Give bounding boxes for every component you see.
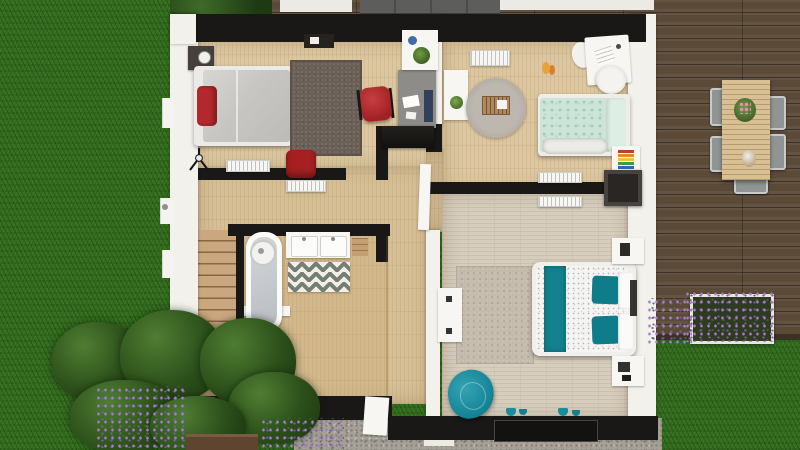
bedroom1-floor-lamp: [188, 146, 210, 172]
table-figurine: [742, 150, 756, 167]
bedroom1-radiator: [226, 160, 270, 172]
bedroom1-shelf-plant: [413, 47, 430, 64]
kids-desk-dot: [616, 44, 621, 49]
bedroom1-laptop: [424, 90, 433, 122]
faucet-left: [302, 237, 306, 241]
master-dresser-knob-1: [446, 296, 452, 302]
stacking-ring-blue: [618, 166, 634, 169]
top-shrubs: [170, 0, 272, 14]
deck-lavender-spill: [646, 298, 692, 344]
kids-radiator-bottom: [538, 172, 582, 183]
master-teal-pillow-1: [592, 276, 621, 305]
curb-top-right: [500, 0, 654, 10]
master-door-panel: [418, 164, 431, 230]
kids-side-table-plant: [450, 96, 463, 109]
bedroom1-shelf-cup: [408, 36, 417, 45]
northwest-corner: [170, 14, 196, 44]
bedroom1-lamp: [198, 51, 211, 64]
bedroom1-red-pillow: [197, 86, 217, 126]
stacking-ring-orange: [618, 154, 634, 157]
west-window-sill-2: [160, 198, 173, 224]
bedroom1-console: [382, 126, 434, 148]
kids-fur-throw: [542, 138, 608, 154]
bedroom1-wall-shelf-item: [310, 37, 319, 44]
bedroom1-pouf: [286, 150, 316, 178]
deck-planter-lavender: [684, 290, 774, 342]
table-flower-blooms: [739, 102, 751, 114]
south-window-sill-right: [424, 440, 454, 446]
lavender-cluster-center: [260, 418, 344, 450]
floor-plan-scene: [0, 0, 800, 450]
bath-wood-shelf: [352, 238, 368, 256]
bedroom1-duvet-fold: [236, 70, 238, 142]
master-teal-runner: [544, 266, 566, 352]
master-white-pillow-2: [618, 313, 633, 350]
master-teal-pillow-2: [592, 316, 621, 345]
master-nightstand-phone: [622, 375, 631, 381]
master-headboard-accent: [630, 280, 637, 316]
kids-side-table: [444, 70, 468, 120]
west-door-knob: [162, 204, 168, 210]
shower-head-dot: [258, 248, 264, 254]
hallway-radiator: [286, 180, 326, 192]
kids-floor-toy: [542, 62, 550, 74]
outdoor-sofa: [360, 0, 500, 15]
master-north-wall: [424, 182, 612, 194]
lavender-cluster-left: [95, 386, 187, 448]
master-rug: [456, 266, 534, 364]
west-window-sill-1: [162, 98, 173, 128]
master-dresser-knob-2: [446, 328, 452, 334]
kids-pillow: [606, 98, 626, 150]
bedroom1-rug: [290, 60, 362, 156]
stacking-ring-yellow: [618, 158, 634, 161]
master-nightstand-bottom-item: [618, 362, 630, 372]
master-nightstand-top-item: [620, 243, 630, 256]
stacking-ring-green: [618, 162, 634, 165]
kids-toy-crib-blanket: [497, 100, 507, 109]
bathroom-seam: [386, 236, 388, 402]
curb-top-left: [280, 0, 352, 12]
chevron-rug: [288, 262, 350, 292]
kids-wardrobe-front: [608, 174, 638, 202]
front-door: [363, 396, 390, 436]
bedroom1-wall-shelf: [304, 34, 334, 48]
bedroom1-desk-paper-2: [406, 111, 417, 119]
stacking-ring-red: [618, 150, 634, 153]
west-window-sill-3: [162, 250, 173, 278]
master-patio-door: [494, 420, 598, 442]
kids-radiator-top: [470, 50, 510, 66]
window-planter-box: [186, 434, 258, 450]
faucet-right: [331, 237, 335, 241]
bedroom1-desk-chair: [359, 86, 392, 123]
master-radiator: [538, 196, 582, 207]
